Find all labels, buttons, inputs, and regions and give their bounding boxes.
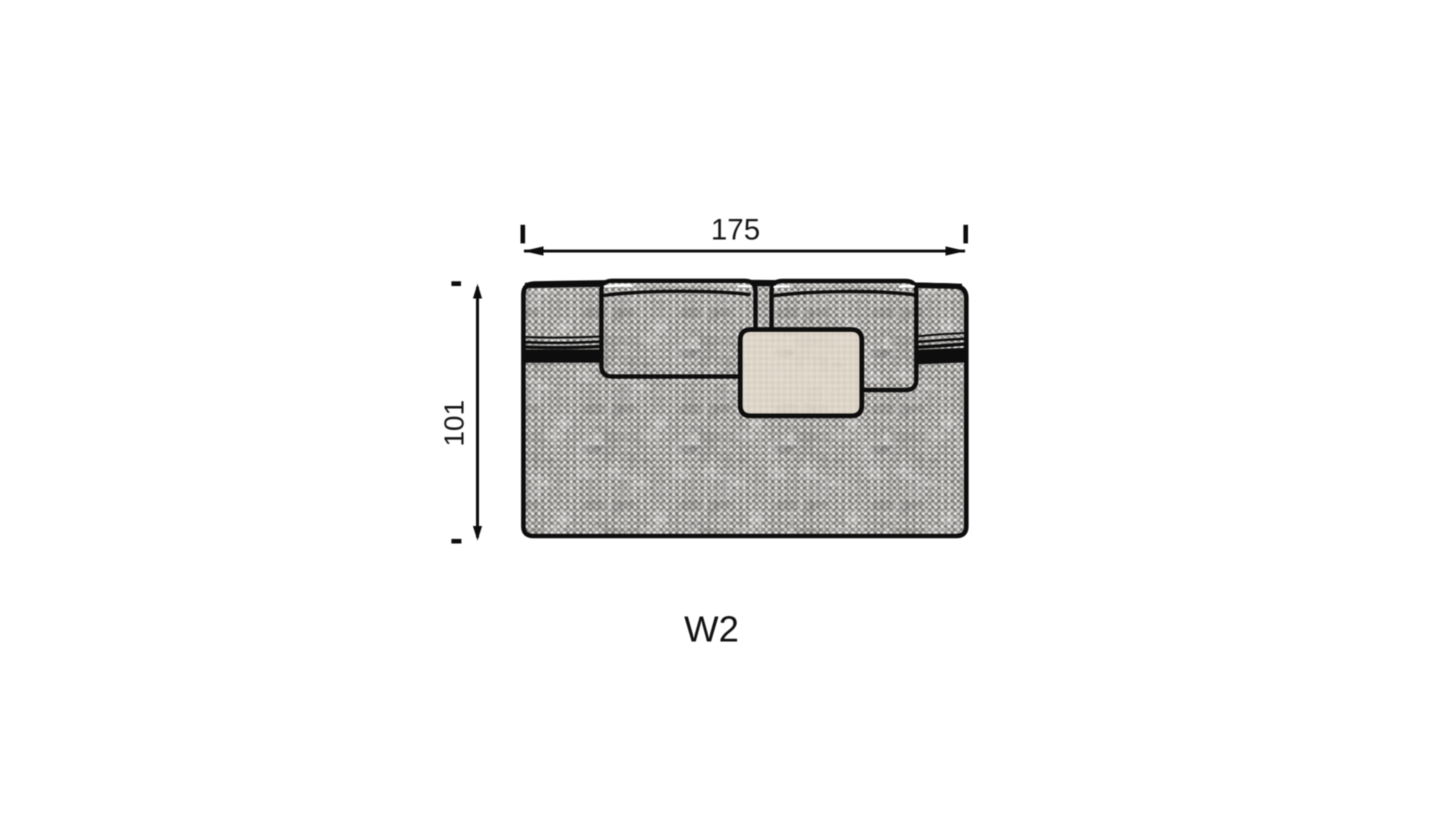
- svg-text:101: 101: [439, 400, 470, 447]
- svg-text:W2: W2: [684, 609, 739, 650]
- svg-text:175: 175: [711, 213, 760, 246]
